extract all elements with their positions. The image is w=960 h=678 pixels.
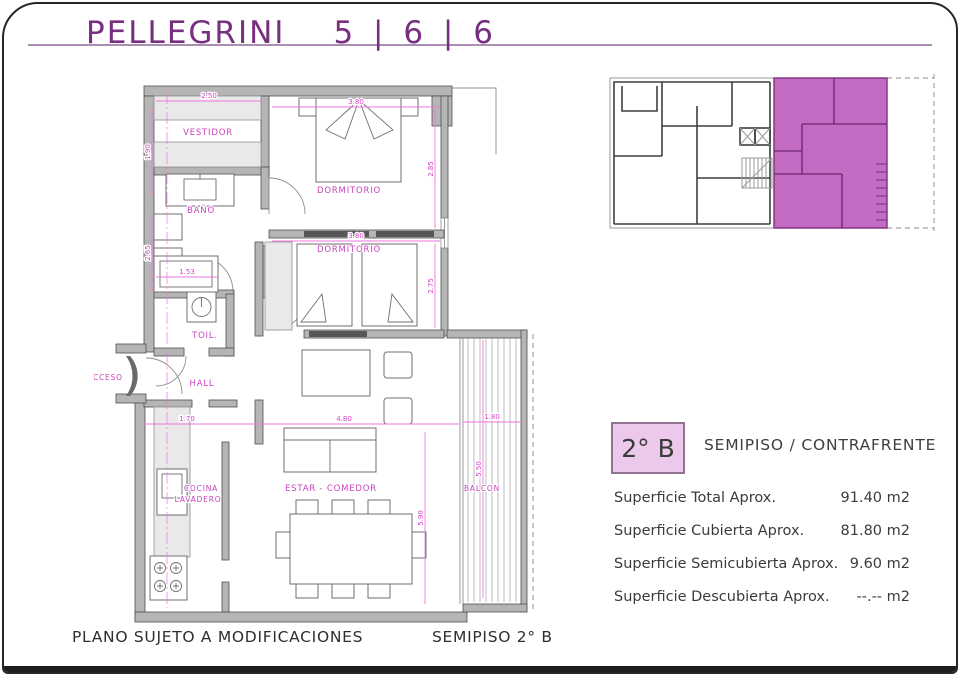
balcony	[460, 338, 516, 604]
surface-label: Superficie Semicubierta Aprox.	[614, 556, 838, 572]
dim-vestidor-h: 1.90	[144, 144, 152, 160]
dim-dorm1-h: 2.85	[427, 161, 435, 177]
dim-dorm2-w: 3.80	[348, 232, 364, 240]
surface-value: --.-- m2	[857, 589, 911, 605]
table-row: Superficie Total Aprox. 91.40 m2	[614, 481, 910, 514]
room-label-toil: TOIL.	[191, 331, 218, 341]
key-plan-highlighted-unit	[774, 78, 887, 228]
key-plan-core	[740, 128, 772, 188]
key-plan	[602, 66, 942, 244]
dim-dorm1-w: 3.80	[348, 98, 364, 106]
room-label-hall: HALL	[190, 379, 215, 389]
room-label-balcon: BALCON	[464, 484, 500, 493]
dim-closet-w: 1.53	[179, 268, 195, 276]
room-label-lavadero: LAVADERO	[175, 495, 222, 504]
surface-value: 81.80 m2	[841, 523, 910, 539]
table-row: Superficie Cubierta Aprox. 81.80 m2	[614, 514, 910, 547]
surface-label: Superficie Cubierta Aprox.	[614, 523, 804, 539]
dim-vestidor-w: 2.50	[201, 92, 217, 100]
table-row: Superficie Descubierta Aprox. --.-- m2	[614, 580, 910, 613]
furniture	[276, 98, 426, 598]
floor-label: SEMIPISO 2° B	[432, 628, 553, 646]
plan-sheet: PELLEGRINI 5 | 6 | 6	[2, 2, 958, 674]
room-label-dormitorio-1: DORMITORIO	[317, 186, 381, 196]
room-label-dormitorio-2: DORMITORIO	[317, 245, 381, 255]
surface-value: 9.60 m2	[850, 556, 910, 572]
unit-badge: 2° B	[611, 422, 685, 474]
bottom-border-strip	[4, 666, 956, 672]
room-label-estar-comedor: ESTAR - COMEDOR	[285, 484, 377, 494]
unit-type-label: SEMIPISO / CONTRAFRENTE	[704, 436, 936, 454]
room-label-acceso: ACCESO	[94, 373, 123, 382]
room-label-cocina: COCINA	[184, 484, 218, 493]
project-name: PELLEGRINI	[86, 15, 285, 51]
dim-dorm2-h: 2.75	[427, 278, 435, 294]
room-label-bano: BAÑO	[187, 205, 215, 216]
room-label-vestidor: VESTIDOR	[183, 128, 233, 138]
surface-table: Superficie Total Aprox. 91.40 m2 Superfi…	[614, 481, 910, 613]
surface-value: 91.40 m2	[841, 490, 910, 506]
surface-label: Superficie Total Aprox.	[614, 490, 776, 506]
dim-estar-h: 5.90	[417, 510, 425, 526]
floor-plan: 2.50 3.80 3.80 1.53 1.70 4.80 1.80 1.90 …	[94, 76, 539, 628]
dim-balcon-w: 1.80	[484, 413, 500, 421]
dim-balcon-h: 5.50	[475, 461, 483, 477]
dim-estar-w: 4.80	[336, 415, 352, 423]
key-plan-left-unit	[614, 82, 770, 224]
project-numbers: 5 | 6 | 6	[333, 15, 497, 51]
dim-bano-h: 2.65	[144, 245, 152, 261]
dim-cocina-w: 1.70	[179, 415, 195, 423]
entry-arrow	[126, 356, 138, 396]
disclaimer-text: PLANO SUJETO A MODIFICACIONES	[72, 628, 363, 646]
page-title: PELLEGRINI 5 | 6 | 6	[86, 15, 498, 51]
table-row: Superficie Semicubierta Aprox. 9.60 m2	[614, 547, 910, 580]
surface-label: Superficie Descubierta Aprox.	[614, 589, 830, 605]
